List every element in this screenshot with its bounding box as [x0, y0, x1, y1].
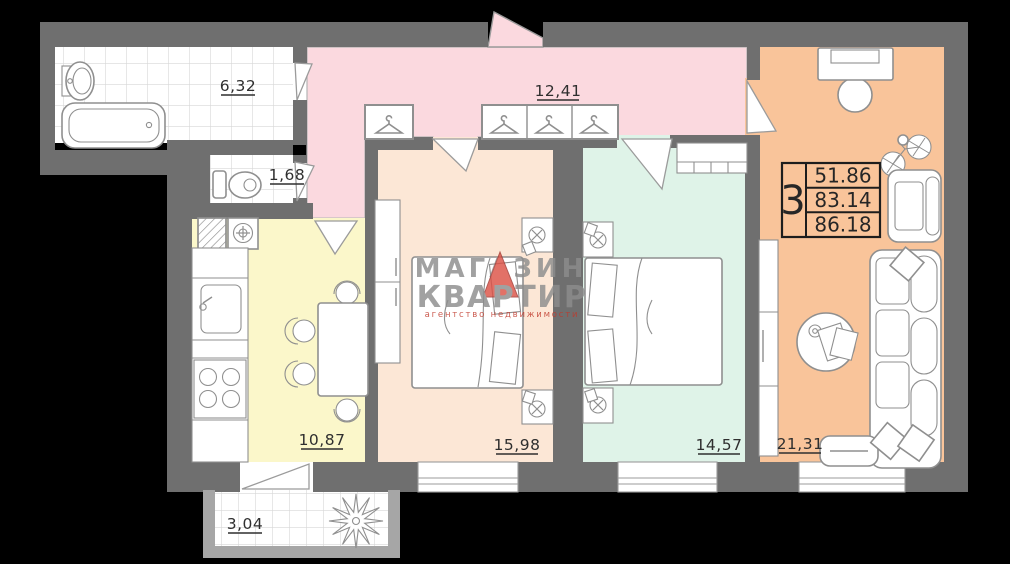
wardrobe-single — [365, 105, 413, 139]
dining-table — [318, 303, 368, 396]
area-label-bathroom: 6,32 — [220, 77, 257, 95]
area-label-balcony: 3,04 — [227, 515, 264, 533]
toilet-icon — [213, 171, 261, 198]
area-value-2: 83.14 — [814, 188, 871, 212]
wash-basin-icon — [62, 62, 94, 100]
area-label-wc: 1,68 — [269, 166, 306, 184]
wardrobe — [375, 200, 400, 363]
area-label-bedroom1: 15,98 — [494, 436, 541, 454]
floor-plan-page: 6,32 1,68 12,41 10,87 15,98 14,57 21,31 … — [0, 0, 1010, 564]
area-label-kitchen: 10,87 — [299, 431, 346, 449]
desk-chair — [838, 78, 872, 112]
dresser — [677, 143, 747, 173]
rooms-count: 3 — [780, 178, 805, 224]
bathtub-icon — [62, 103, 165, 148]
floor-plan: 6,32 1,68 12,41 10,87 15,98 14,57 21,31 … — [0, 0, 1010, 564]
armchair — [888, 170, 941, 242]
double-bed — [585, 258, 722, 385]
hallway-wardrobes — [365, 105, 618, 139]
washing-machine-icon — [198, 218, 258, 249]
window-bedroom2 — [618, 462, 717, 492]
stove-icon — [194, 360, 246, 418]
desk — [818, 48, 893, 80]
wardrobe — [759, 240, 778, 456]
area-label-hallway: 12,41 — [535, 82, 582, 100]
nightstand-lamp-icon — [583, 388, 613, 423]
nightstand-lamp-icon — [583, 222, 613, 257]
wardrobe-triple — [482, 105, 618, 139]
kitchen-counter — [192, 248, 248, 462]
watermark: МАГАЗИН КВАРТИР агентство недвижимости — [415, 252, 588, 320]
nightstand-lamp-icon — [522, 218, 553, 255]
watermark-tagline: агентство недвижимости — [425, 310, 580, 320]
area-label-bedroom2: 14,57 — [696, 436, 743, 454]
window-bedroom1 — [418, 462, 518, 492]
nightstand-lamp-icon — [522, 390, 553, 424]
area-value-1: 51.86 — [814, 164, 871, 188]
area-label-living: 21,31 — [777, 435, 824, 453]
area-value-3: 86.18 — [814, 213, 871, 237]
